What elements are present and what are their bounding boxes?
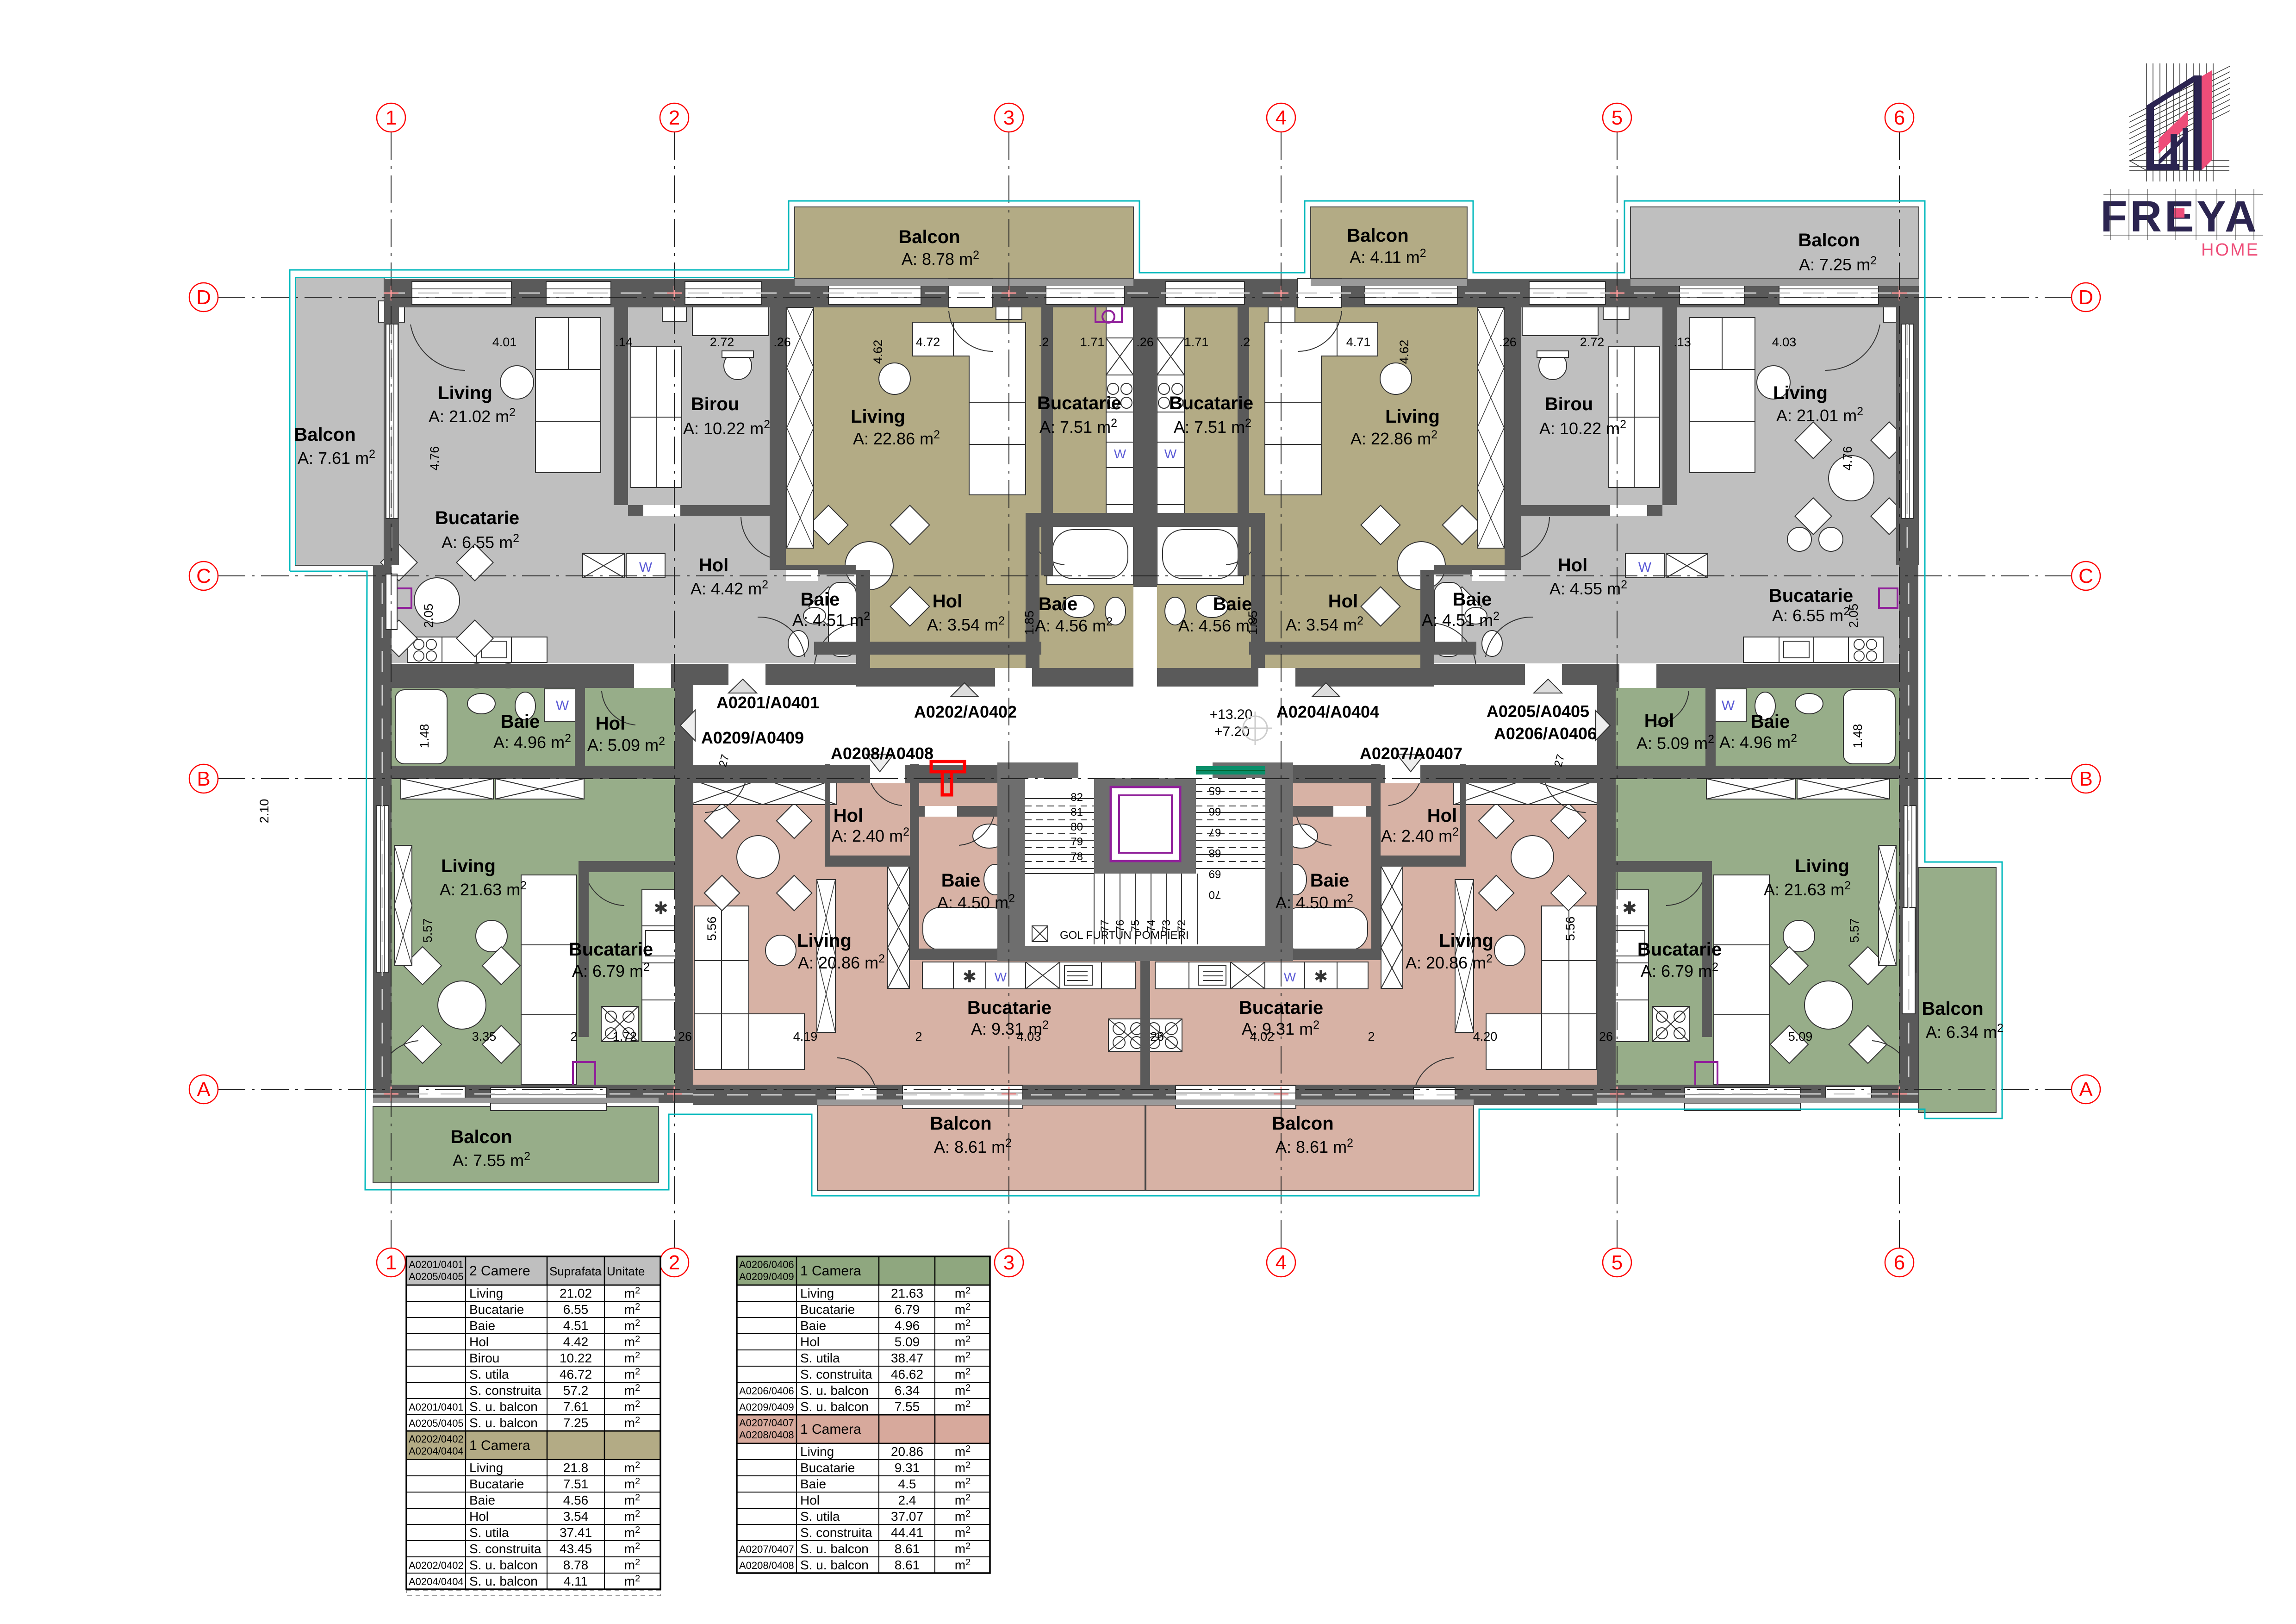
svg-text:A0204/0404: A0204/0404 (409, 1445, 464, 1457)
svg-text:4.03: 4.03 (1772, 335, 1797, 349)
svg-text:1.85: 1.85 (1246, 611, 1260, 635)
svg-text:5: 5 (1612, 1251, 1623, 1274)
svg-text:S. construita: S. construita (469, 1542, 541, 1556)
svg-text:8.78: 8.78 (563, 1558, 589, 1572)
svg-text:S. construita: S. construita (469, 1383, 541, 1398)
svg-text:6: 6 (1894, 1251, 1905, 1274)
svg-text:8.61: 8.61 (895, 1542, 920, 1556)
svg-text:Baie: Baie (800, 1318, 826, 1333)
svg-text:4.71: 4.71 (1346, 335, 1371, 349)
svg-text:4.96: 4.96 (895, 1318, 920, 1333)
svg-text:Bucatarie: Bucatarie (1769, 586, 1853, 606)
svg-text:Living: Living (469, 1286, 503, 1300)
svg-text:W: W (1114, 447, 1126, 461)
svg-text:.14: .14 (615, 335, 633, 349)
svg-text:7.55: 7.55 (895, 1399, 920, 1414)
svg-text:81: 81 (1070, 806, 1083, 818)
svg-text:A: 6.34 m2: A: 6.34 m2 (1926, 1022, 2004, 1042)
svg-text:D: D (196, 286, 211, 309)
svg-text:3: 3 (1003, 106, 1014, 129)
svg-text:1.48: 1.48 (1851, 724, 1865, 749)
svg-text:S. utila: S. utila (800, 1509, 840, 1524)
svg-text:Balcon: Balcon (1347, 225, 1408, 246)
svg-text:68: 68 (1209, 847, 1221, 859)
svg-text:A: 20.86 m2: A: 20.86 m2 (798, 952, 885, 972)
svg-text:A: 7.61 m2: A: 7.61 m2 (298, 448, 375, 468)
svg-text:4.20: 4.20 (1473, 1030, 1498, 1043)
svg-text:Baie: Baie (801, 589, 840, 610)
svg-text:Living: Living (438, 383, 492, 403)
svg-text:GOL FURTUN POMPIERI: GOL FURTUN POMPIERI (1060, 929, 1189, 942)
svg-text:Hol: Hol (596, 713, 625, 734)
svg-text:Birou: Birou (1545, 394, 1593, 414)
svg-text:5.09: 5.09 (895, 1335, 920, 1349)
svg-text:Balcon: Balcon (1272, 1113, 1333, 1134)
svg-text:S. u. balcon: S. u. balcon (800, 1383, 869, 1398)
svg-text:.26: .26 (1499, 335, 1517, 349)
svg-text:S. u. balcon: S. u. balcon (469, 1399, 538, 1414)
svg-text:✱: ✱ (653, 899, 668, 918)
svg-text:4.76: 4.76 (1841, 446, 1854, 471)
svg-text:Living: Living (800, 1444, 834, 1459)
svg-text:70: 70 (1209, 888, 1221, 901)
svg-text:1.85: 1.85 (1022, 611, 1036, 635)
svg-text:B: B (2079, 768, 2092, 790)
svg-text:Living: Living (1795, 856, 1849, 876)
svg-text:S. u. balcon: S. u. balcon (800, 1399, 869, 1414)
svg-text:Bucatarie: Bucatarie (469, 1302, 524, 1317)
svg-text:Balcon: Balcon (1798, 230, 1860, 250)
svg-text:66: 66 (1209, 805, 1221, 818)
svg-text:26: 26 (1599, 1030, 1613, 1043)
svg-text:2.05: 2.05 (422, 604, 436, 628)
svg-text:Bucatarie: Bucatarie (1637, 939, 1722, 960)
svg-text:A: 8.78 m2: A: 8.78 m2 (902, 249, 979, 269)
svg-text:A: 4.96 m2: A: 4.96 m2 (493, 732, 571, 752)
svg-text:.26: .26 (1136, 335, 1154, 349)
svg-text:Baie: Baie (501, 712, 540, 732)
svg-text:3.54: 3.54 (563, 1509, 589, 1524)
svg-text:37.41: 37.41 (560, 1525, 592, 1540)
svg-text:A0201/0401: A0201/0401 (409, 1401, 464, 1413)
svg-text:Hol: Hol (1644, 711, 1674, 731)
svg-text:✱: ✱ (1622, 899, 1637, 918)
svg-text:A: 22.86 m2: A: 22.86 m2 (1350, 428, 1437, 448)
svg-text:W: W (1164, 447, 1176, 461)
svg-text:S. u. balcon: S. u. balcon (469, 1574, 538, 1588)
svg-text:4.62: 4.62 (1397, 340, 1411, 364)
svg-text:26: 26 (678, 1030, 692, 1043)
svg-text:Balcon: Balcon (294, 425, 355, 445)
svg-text:4.56: 4.56 (563, 1493, 589, 1507)
svg-text:S. construita: S. construita (800, 1367, 872, 1381)
svg-text:Hol: Hol (699, 555, 728, 575)
svg-text:Living: Living (1439, 931, 1493, 951)
svg-text:C: C (2078, 565, 2093, 587)
svg-text:A: 4.42 m2: A: 4.42 m2 (691, 578, 768, 598)
svg-text:1.71: 1.71 (1184, 335, 1209, 349)
svg-text:S. utila: S. utila (469, 1525, 509, 1540)
svg-text:Bucatarie: Bucatarie (1169, 393, 1253, 413)
svg-text:W: W (1638, 560, 1651, 575)
svg-text:21.8: 21.8 (563, 1461, 589, 1475)
svg-text:3: 3 (1003, 1251, 1014, 1274)
svg-text:A: 5.09 m2: A: 5.09 m2 (1636, 733, 1714, 753)
svg-text:Hol: Hol (800, 1335, 820, 1349)
svg-text:A: 4.51 m2: A: 4.51 m2 (792, 610, 870, 630)
svg-text:Suprafata: Suprafata (549, 1264, 602, 1278)
svg-text:44.41: 44.41 (891, 1525, 923, 1540)
svg-text:46.72: 46.72 (560, 1367, 592, 1381)
svg-text:57.2: 57.2 (563, 1383, 589, 1398)
svg-text:Bucatarie: Bucatarie (569, 939, 653, 960)
svg-text:B: B (197, 768, 210, 790)
svg-text:A: 20.86 m2: A: 20.86 m2 (1406, 952, 1493, 972)
svg-text:1 Camera: 1 Camera (469, 1438, 530, 1453)
svg-text:Bucatarie: Bucatarie (800, 1302, 855, 1317)
svg-text:A0206/A0406: A0206/A0406 (1494, 724, 1597, 743)
svg-text:20.86: 20.86 (891, 1444, 923, 1459)
svg-text:A: 7.51 m2: A: 7.51 m2 (1174, 417, 1251, 437)
svg-text:7.61: 7.61 (563, 1399, 589, 1414)
svg-text:A0201/A0401: A0201/A0401 (716, 693, 819, 712)
svg-text:5.56: 5.56 (705, 917, 719, 941)
svg-text:Living: Living (1385, 406, 1440, 427)
svg-text:Birou: Birou (691, 394, 739, 414)
svg-text:21.02: 21.02 (560, 1286, 592, 1300)
svg-text:2: 2 (570, 1030, 577, 1043)
svg-text:5.57: 5.57 (421, 918, 435, 943)
svg-text:4.5: 4.5 (898, 1477, 916, 1491)
svg-text:A0204/0404: A0204/0404 (409, 1576, 464, 1587)
svg-text:8.61: 8.61 (895, 1558, 920, 1572)
svg-text:S. utila: S. utila (469, 1367, 509, 1381)
svg-text:A: 21.63 m2: A: 21.63 m2 (1764, 879, 1851, 899)
svg-text:A0207/A0407: A0207/A0407 (1360, 744, 1462, 763)
svg-text:Unitate: Unitate (607, 1264, 645, 1278)
svg-text:A: 4.55 m2: A: 4.55 m2 (1549, 578, 1627, 598)
svg-text:Hol: Hol (834, 806, 863, 826)
svg-text:A: 7.51 m2: A: 7.51 m2 (1039, 417, 1117, 437)
svg-text:A0205/0405: A0205/0405 (409, 1418, 464, 1429)
svg-text:67: 67 (1209, 826, 1221, 838)
svg-text:A0206/0406: A0206/0406 (739, 1385, 794, 1397)
svg-text:4.19: 4.19 (793, 1030, 818, 1043)
svg-text:2: 2 (669, 1251, 680, 1274)
svg-text:Hol: Hol (469, 1335, 489, 1349)
svg-text:1 Camera: 1 Camera (800, 1263, 861, 1279)
svg-text:Living: Living (797, 931, 852, 951)
svg-text:A0209/0409: A0209/0409 (739, 1401, 794, 1413)
svg-text:Baie: Baie (469, 1493, 495, 1507)
svg-text:W: W (995, 970, 1007, 984)
svg-text:4.72: 4.72 (916, 335, 940, 349)
svg-text:A: 5.09 m2: A: 5.09 m2 (587, 735, 665, 755)
svg-text:A0202/A0402: A0202/A0402 (914, 702, 1017, 721)
svg-text:Bucatarie: Bucatarie (469, 1477, 524, 1491)
svg-text:A0206/0406: A0206/0406 (739, 1259, 794, 1270)
svg-text:A0205/0405: A0205/0405 (409, 1271, 464, 1282)
svg-text:A: 3.54 m2: A: 3.54 m2 (1286, 614, 1363, 634)
svg-text:Baie: Baie (941, 870, 981, 891)
svg-text:S. construita: S. construita (800, 1525, 872, 1540)
svg-text:A: 8.61 m2: A: 8.61 m2 (934, 1137, 1012, 1156)
svg-text:A: 4.96 m2: A: 4.96 m2 (1719, 732, 1797, 752)
svg-text:S. u. balcon: S. u. balcon (469, 1558, 538, 1572)
svg-text:Bucatarie: Bucatarie (1239, 998, 1323, 1018)
svg-text:Hol: Hol (800, 1493, 820, 1507)
svg-text:✱: ✱ (963, 967, 977, 986)
svg-text:A0208/0408: A0208/0408 (739, 1429, 794, 1441)
svg-text:6.55: 6.55 (563, 1302, 589, 1317)
svg-text:A: 6.79 m2: A: 6.79 m2 (1641, 961, 1718, 981)
svg-text:9.31: 9.31 (895, 1461, 920, 1475)
svg-text:A0207/0407: A0207/0407 (739, 1417, 794, 1429)
svg-text:A: 6.55 m2: A: 6.55 m2 (442, 532, 519, 552)
svg-text:A: 8.61 m2: A: 8.61 m2 (1276, 1137, 1353, 1156)
svg-text:A: 21.02 m2: A: 21.02 m2 (429, 406, 516, 426)
svg-text:4.03: 4.03 (1017, 1030, 1041, 1043)
svg-text:W: W (639, 560, 653, 575)
svg-text:A: 4.56 m2: A: 4.56 m2 (1178, 615, 1256, 635)
svg-text:.2: .2 (1039, 335, 1049, 349)
svg-text:4.11: 4.11 (564, 1574, 588, 1588)
svg-text:10.22: 10.22 (560, 1351, 592, 1365)
svg-text:A: 10.22 m2: A: 10.22 m2 (1539, 418, 1626, 438)
svg-text:69: 69 (1209, 868, 1221, 880)
svg-text:82: 82 (1070, 791, 1083, 804)
svg-text:3.35: 3.35 (472, 1030, 497, 1043)
svg-text:A: 4.56 m2: A: 4.56 m2 (1035, 615, 1113, 635)
svg-text:80: 80 (1070, 821, 1083, 833)
svg-text:1: 1 (386, 1251, 397, 1274)
svg-text:5.56: 5.56 (1563, 917, 1577, 941)
svg-text:78: 78 (1070, 850, 1083, 863)
svg-text:Balcon: Balcon (450, 1127, 512, 1147)
svg-text:A0202/0402: A0202/0402 (409, 1433, 464, 1445)
svg-text:37.07: 37.07 (891, 1509, 923, 1524)
svg-text:A: 6.55 m2: A: 6.55 m2 (1772, 605, 1850, 625)
svg-text:Bucatarie: Bucatarie (800, 1461, 855, 1475)
svg-text:A: A (197, 1078, 211, 1101)
svg-text:5: 5 (1612, 106, 1623, 129)
svg-text:A0201/0401: A0201/0401 (409, 1259, 464, 1270)
svg-text:4.76: 4.76 (428, 446, 442, 471)
svg-text:S. u. balcon: S. u. balcon (800, 1542, 869, 1556)
svg-text:A0204/A0404: A0204/A0404 (1276, 702, 1379, 721)
svg-text:A: 21.63 m2: A: 21.63 m2 (440, 879, 527, 899)
svg-text:S. utila: S. utila (800, 1351, 840, 1365)
svg-text:4.01: 4.01 (492, 335, 517, 349)
svg-text:Living: Living (469, 1461, 503, 1475)
svg-text:2.72: 2.72 (1580, 335, 1605, 349)
svg-text:A0209/A0409: A0209/A0409 (701, 728, 804, 747)
svg-text:A0205/A0405: A0205/A0405 (1487, 702, 1589, 721)
svg-text:2 Camere: 2 Camere (469, 1263, 530, 1279)
svg-text:Living: Living (441, 856, 496, 876)
svg-text:S. u. balcon: S. u. balcon (469, 1416, 538, 1430)
svg-text:Baie: Baie (800, 1477, 826, 1491)
svg-text:C: C (196, 565, 211, 587)
svg-text:Hol: Hol (1328, 591, 1358, 612)
svg-text:Living: Living (800, 1286, 834, 1300)
svg-text:4.42: 4.42 (563, 1335, 589, 1349)
svg-text:A0207/0407: A0207/0407 (739, 1543, 794, 1555)
svg-text:6.79: 6.79 (895, 1302, 920, 1317)
svg-text:.26: .26 (773, 335, 791, 349)
svg-text:7.25: 7.25 (563, 1416, 589, 1430)
svg-text:W: W (1721, 698, 1735, 713)
svg-text:HOME: HOME (2201, 240, 2259, 260)
svg-text:A0208/A0408: A0208/A0408 (831, 744, 933, 763)
svg-text:.13: .13 (1674, 335, 1691, 349)
svg-text:Bucatarie: Bucatarie (435, 508, 519, 528)
svg-text:Baie: Baie (1310, 870, 1350, 891)
svg-text:4.02: 4.02 (1250, 1030, 1275, 1043)
svg-text:A: 3.54 m2: A: 3.54 m2 (927, 614, 1005, 634)
svg-text:1.72: 1.72 (613, 1030, 637, 1043)
svg-text:Hol: Hol (1558, 555, 1587, 575)
svg-text:A: 4.51 m2: A: 4.51 m2 (1422, 610, 1500, 630)
svg-text:4.51: 4.51 (563, 1318, 589, 1333)
svg-text:1.71: 1.71 (1080, 335, 1105, 349)
svg-text:4: 4 (1276, 1251, 1287, 1274)
svg-text:Baie: Baie (1039, 594, 1078, 614)
svg-text:A: 4.11 m2: A: 4.11 m2 (1350, 247, 1426, 267)
svg-text:S. u. balcon: S. u. balcon (800, 1558, 869, 1572)
svg-text:Balcon: Balcon (930, 1113, 991, 1134)
svg-text:Hol: Hol (469, 1509, 489, 1524)
svg-text:A0209/0409: A0209/0409 (739, 1271, 794, 1282)
svg-text:A: 2.40 m2: A: 2.40 m2 (1381, 825, 1459, 845)
svg-text:2.10: 2.10 (257, 799, 271, 824)
svg-text:46.62: 46.62 (891, 1367, 923, 1381)
svg-text:.2: .2 (1240, 335, 1251, 349)
svg-text:Birou: Birou (469, 1351, 499, 1365)
svg-text:65: 65 (1209, 784, 1221, 797)
svg-text:2: 2 (915, 1030, 922, 1043)
svg-text:1.48: 1.48 (417, 724, 431, 749)
svg-text:Baie: Baie (469, 1318, 495, 1333)
svg-text:6.34: 6.34 (895, 1383, 920, 1398)
svg-text:38.47: 38.47 (891, 1351, 923, 1365)
svg-text:A: 4.50 m2: A: 4.50 m2 (1276, 892, 1353, 912)
svg-text:Baie: Baie (1453, 589, 1492, 610)
svg-text:A: A (2079, 1078, 2093, 1101)
svg-text:A0208/0408: A0208/0408 (739, 1560, 794, 1571)
svg-text:5.57: 5.57 (1848, 918, 1861, 943)
svg-text:A: 7.25 m2: A: 7.25 m2 (1799, 254, 1877, 274)
svg-text:Hol: Hol (933, 591, 962, 612)
svg-text:4.62: 4.62 (871, 340, 885, 364)
svg-text:A: 4.50 m2: A: 4.50 m2 (937, 892, 1015, 912)
svg-text:A: 2.40 m2: A: 2.40 m2 (832, 825, 909, 845)
svg-text:W: W (556, 698, 569, 713)
svg-text:A: 22.86 m2: A: 22.86 m2 (853, 428, 940, 448)
svg-text:4: 4 (1276, 106, 1287, 129)
svg-text:2.05: 2.05 (1847, 604, 1860, 628)
svg-text:W: W (1283, 970, 1296, 984)
svg-text:Balcon: Balcon (898, 227, 960, 247)
svg-text:A: 7.55 m2: A: 7.55 m2 (453, 1150, 530, 1170)
svg-text:Hol: Hol (1427, 806, 1457, 826)
svg-text:A: 21.01 m2: A: 21.01 m2 (1776, 405, 1863, 425)
svg-text:43.45: 43.45 (560, 1542, 592, 1556)
svg-text:D: D (2078, 286, 2093, 309)
svg-text:2: 2 (669, 106, 680, 129)
svg-text:Baie: Baie (1751, 712, 1790, 732)
svg-text:Living: Living (1773, 383, 1828, 403)
svg-text:2.72: 2.72 (710, 335, 734, 349)
svg-text:Bucatarie: Bucatarie (1037, 393, 1121, 413)
svg-text:21.63: 21.63 (891, 1286, 923, 1300)
svg-text:6: 6 (1894, 106, 1905, 129)
svg-text:Bucatarie: Bucatarie (967, 998, 1052, 1018)
svg-text:A0202/0402: A0202/0402 (409, 1560, 464, 1571)
svg-text:1: 1 (386, 106, 397, 129)
svg-text:Living: Living (851, 406, 905, 427)
svg-text:2.4: 2.4 (898, 1493, 916, 1507)
svg-text:✱: ✱ (1314, 967, 1328, 986)
svg-text:Balcon: Balcon (1922, 999, 1983, 1019)
svg-text:7.51: 7.51 (563, 1477, 589, 1491)
svg-text:1 Camera: 1 Camera (800, 1422, 861, 1437)
svg-text:2: 2 (1368, 1030, 1375, 1043)
svg-text:A: 10.22 m2: A: 10.22 m2 (683, 418, 770, 438)
svg-text:5.09: 5.09 (1788, 1030, 1813, 1043)
svg-text:26: 26 (1150, 1030, 1164, 1043)
svg-text:A: 6.79 m2: A: 6.79 m2 (572, 961, 650, 981)
svg-text:79: 79 (1070, 836, 1083, 848)
